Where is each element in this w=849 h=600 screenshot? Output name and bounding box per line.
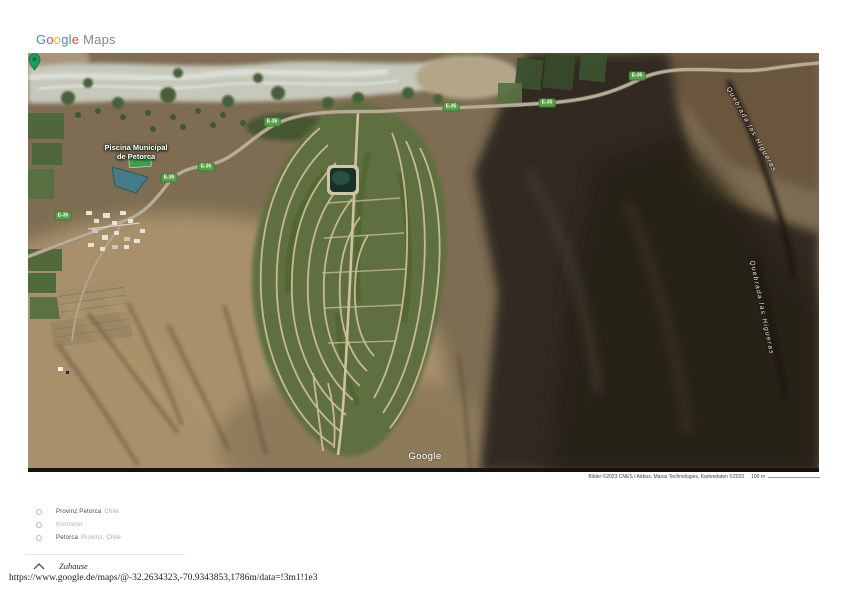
map-attribution: Bilder ©2023 CNES / Airbus, Maxar Techno… (588, 474, 820, 480)
suggestion-row-provinz-petorca[interactable]: Provinz PetorcaChile (36, 505, 121, 518)
divider (25, 554, 185, 555)
logo-maps-text: Maps (83, 32, 116, 47)
suggestion-primary: Petorca (56, 535, 78, 541)
attribution-text: Bilder ©2023 CNES / Airbus, Maxar Techno… (588, 474, 744, 480)
place-label-line2: de Petorca (88, 152, 184, 161)
home-label: Zuhause (59, 561, 88, 571)
scale-bar-line (768, 477, 820, 478)
map-canvas[interactable]: E-35 E-35 E-35 E-35 E-35 E-35 E-35 Quebr… (28, 53, 819, 472)
logo-letter: g (61, 32, 68, 47)
map-pin-icon[interactable] (28, 53, 41, 71)
radio-icon[interactable] (36, 535, 42, 541)
satellite-imagery (28, 53, 819, 472)
google-maps-logo[interactable]: GoogleMaps (36, 32, 116, 47)
route-shield-e35: E-35 (198, 163, 215, 172)
suggestion-row-petorca[interactable]: PetorcaProvinz, Chile (36, 531, 121, 544)
scale-text: 100 m (751, 474, 765, 480)
logo-letter: o (46, 32, 53, 47)
suggestion-list: Provinz PetorcaChile Kilometer PetorcaPr… (36, 505, 121, 544)
google-watermark: Google (380, 451, 470, 462)
suggestion-primary: Provinz Petorca (56, 509, 101, 515)
route-shield-e35: E-35 (443, 103, 460, 112)
suggestion-secondary: Provinz, Chile (81, 535, 121, 541)
suggestion-secondary: Chile (104, 509, 119, 515)
google-logo-word: Google (36, 32, 79, 47)
scale-bar: 100 m (751, 474, 820, 480)
route-shield-e35: E-35 (55, 212, 72, 221)
place-label[interactable]: Piscina Municipal de Petorca (88, 143, 184, 162)
route-shield-e35: E-35 (629, 72, 646, 81)
logo-letter: e (72, 32, 79, 47)
home-row[interactable]: Zuhause (33, 561, 88, 571)
route-shield-e35: E-35 (539, 99, 556, 108)
route-shield-e35: E-35 (264, 118, 281, 127)
logo-letter: G (36, 32, 46, 47)
chevron-up-icon[interactable] (33, 563, 45, 570)
radio-icon[interactable] (36, 522, 42, 528)
suggestion-primary: Kilometer (56, 522, 83, 528)
route-shield-e35: E-35 (161, 174, 178, 183)
radio-icon[interactable] (36, 509, 42, 515)
page-url: https://www.google.de/maps/@-32.2634323,… (9, 573, 317, 583)
place-label-line1: Piscina Municipal (88, 143, 184, 152)
suggestion-row-kilometer[interactable]: Kilometer (36, 518, 121, 531)
